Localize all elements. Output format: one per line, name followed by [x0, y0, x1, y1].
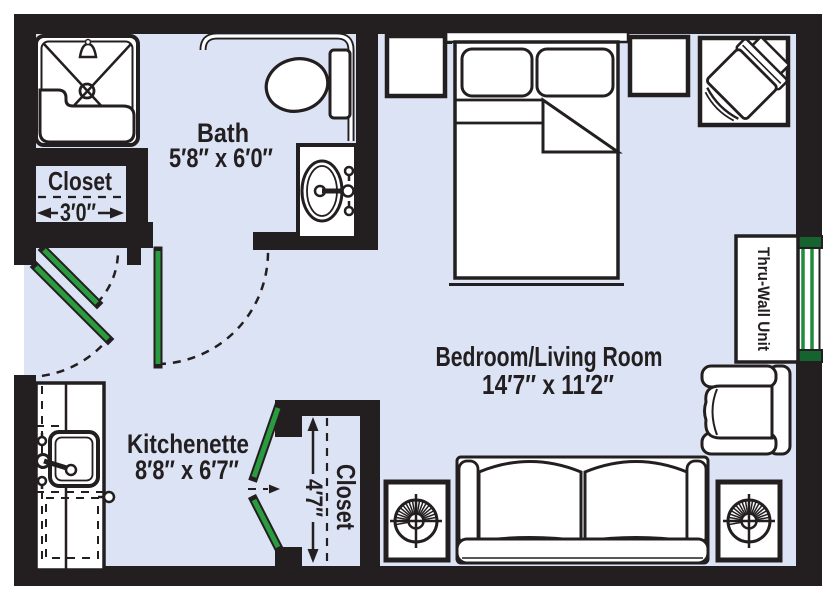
faucet-handle — [38, 437, 46, 445]
sofa-cushion — [585, 462, 687, 542]
faucet-handle — [345, 167, 353, 175]
side-table-right — [718, 482, 780, 560]
bedroom-living-dimensions: 14′7″ x 11′2″ — [482, 369, 614, 400]
bed — [446, 32, 628, 285]
sofa-arm — [687, 461, 706, 545]
bedroom-living-label: Bedroom/Living Room — [436, 341, 663, 372]
thru-wall-unit-label: Thru-Wall Unit — [754, 247, 773, 351]
nightstand-left — [387, 36, 445, 96]
sofa-arm — [459, 461, 478, 545]
main-closet-depth: 4′7″ — [300, 479, 327, 517]
side-table-left — [386, 482, 448, 560]
sofa — [457, 457, 708, 563]
armchair — [702, 366, 790, 454]
floor-plan: Bath 5′8″ x 6′0″ Closet 3′0″ Bedroom/Liv… — [0, 0, 836, 600]
shower-head-icon — [80, 44, 96, 57]
bath-closet-label: Closet — [48, 166, 112, 196]
pillow — [537, 49, 613, 96]
floor-plan-page: Bath 5′8″ x 6′0″ Closet 3′0″ Bedroom/Liv… — [0, 0, 836, 600]
corner-accent-chair — [696, 30, 796, 130]
appliance-handle — [104, 492, 114, 502]
kitchenette-dimensions: 8′8″ x 6′7″ — [135, 455, 239, 485]
pillow — [462, 49, 532, 96]
nightstand-right — [630, 37, 688, 95]
shower — [36, 36, 138, 145]
faucet-handle — [345, 207, 353, 215]
bath-dimensions: 5′8″ x 6′0″ — [169, 143, 273, 173]
armchair-arm — [702, 366, 776, 387]
faucet-handle — [38, 477, 46, 485]
kitchen-counter — [36, 383, 114, 570]
main-closet-label: Closet — [331, 464, 361, 530]
kitchen-sink-icon — [37, 432, 99, 489]
bathroom-sink-vanity — [298, 145, 356, 238]
sofa-back — [457, 539, 708, 563]
sofa-cushion — [479, 462, 581, 542]
bath-closet-width: 3′0″ — [60, 199, 96, 227]
